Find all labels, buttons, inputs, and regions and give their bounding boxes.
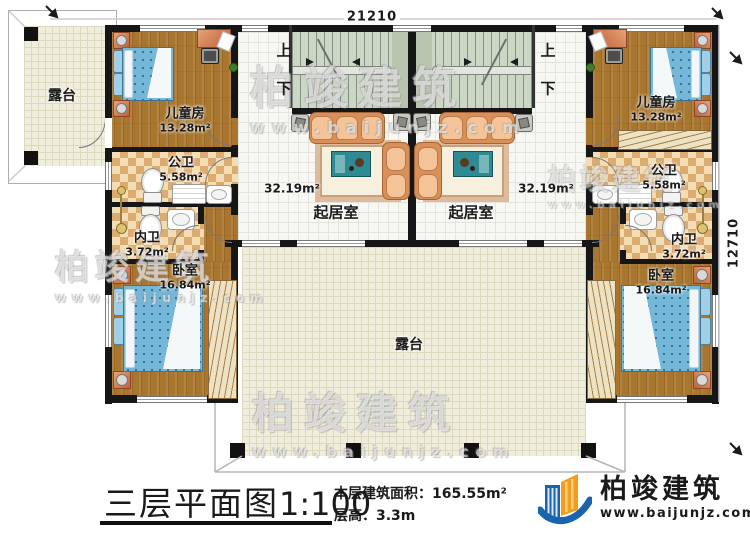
room-area-living-right: 32.19m² <box>518 182 574 195</box>
room-label-public-bath-left: 公卫5.58m² <box>159 157 202 184</box>
wardrobe <box>208 280 237 399</box>
plan-title: 三层平面图 <box>104 484 279 523</box>
wall-segment <box>684 25 716 32</box>
room-label-child-left: 儿童房13.28m² <box>159 108 210 135</box>
column <box>581 443 596 458</box>
speaker <box>393 113 411 131</box>
computer-monitor <box>201 48 219 64</box>
window <box>105 162 112 190</box>
wall-segment <box>280 240 297 247</box>
window <box>297 240 365 247</box>
wall-segment <box>231 145 238 157</box>
window <box>242 25 268 32</box>
wall-segment <box>527 240 544 247</box>
coffee-table <box>331 151 371 177</box>
door-opening <box>105 118 112 148</box>
room-label-private-bath-right: 内卫3.72m² <box>662 234 705 261</box>
wall-segment <box>105 190 112 295</box>
wall-segment <box>365 240 413 247</box>
wall-segment <box>620 205 626 224</box>
bed-pillow <box>691 50 700 98</box>
nightstand <box>693 266 711 284</box>
stairs-up-label-left: 上 <box>276 40 291 61</box>
window <box>140 25 205 32</box>
title-block: 三层平面图1:100 <box>104 477 371 525</box>
company-logo: 柏竣建筑 www.baijunjz.com <box>538 468 750 528</box>
stair-handrail <box>292 66 392 75</box>
floor-plan-canvas: 柏竣建筑www.baijunjz.com 柏竣建筑www.baijunjz.co… <box>0 0 750 540</box>
stair-direction-arrow <box>464 58 472 66</box>
wall-segment <box>586 145 593 157</box>
wall-segment <box>687 395 719 403</box>
column <box>24 27 38 41</box>
wardrobe <box>618 130 712 150</box>
nightstand <box>694 100 711 117</box>
wall-segment <box>198 250 204 262</box>
sink <box>206 185 232 204</box>
stairs-up-label-right: 上 <box>540 40 555 61</box>
wardrobe <box>587 280 616 399</box>
stair-direction-arrow <box>352 58 360 66</box>
room-label-private-bath-left: 内卫3.72m² <box>125 232 168 259</box>
wall-segment <box>431 25 556 32</box>
column <box>346 443 361 458</box>
nightstand <box>113 266 131 284</box>
toilet-tank <box>662 192 681 203</box>
nightstand <box>693 371 711 389</box>
wall-segment <box>268 25 393 32</box>
toilet-tank <box>143 192 162 203</box>
stair-handrail <box>432 66 532 75</box>
wall-segment <box>231 184 238 215</box>
sofa <box>439 112 515 144</box>
stair-direction-arrow <box>306 58 314 66</box>
floor-area-note: 本层建筑面积：165.55m² <box>334 484 507 506</box>
sofa <box>309 112 385 144</box>
nightstand <box>113 100 130 117</box>
speaker <box>291 114 309 132</box>
dimension-top: 21210 <box>344 10 400 25</box>
wall-segment <box>198 205 204 224</box>
wall-segment <box>108 25 140 32</box>
coffee-table <box>453 151 493 177</box>
window <box>556 25 582 32</box>
column <box>230 443 245 458</box>
armchair-pair <box>382 142 410 200</box>
room-label-terrace-bottom: 露台 <box>395 338 423 354</box>
wall-segment <box>105 148 112 162</box>
logo-url: www.baijunjz.com <box>600 506 750 521</box>
window <box>459 240 527 247</box>
bed-pillow <box>125 289 135 368</box>
towel-rail <box>117 186 125 232</box>
speaker <box>413 113 431 131</box>
room-label-public-bath-right: 公卫5.58m² <box>642 165 685 192</box>
window <box>105 295 112 347</box>
sink <box>592 185 618 204</box>
towel-rail <box>699 186 707 232</box>
room-label-child-right: 儿童房13.28m² <box>630 97 681 124</box>
plant <box>586 63 595 72</box>
window <box>619 25 684 32</box>
floor-stair-landing <box>414 32 432 108</box>
wall-segment <box>712 190 719 295</box>
wall-segment <box>712 25 719 162</box>
plan-notes: 本层建筑面积：165.55m² 层高：3.3m <box>334 484 507 527</box>
title-underline <box>100 521 332 525</box>
column <box>24 151 38 165</box>
window <box>411 25 431 32</box>
wall-segment <box>411 32 416 247</box>
wall-segment <box>532 25 535 108</box>
computer-monitor <box>605 48 623 64</box>
window <box>712 295 719 347</box>
room-label-living-left: 起居室 <box>313 205 358 222</box>
wall-segment <box>105 395 137 403</box>
floor-height-note: 层高：3.3m <box>334 506 507 528</box>
dimension-right: 12710 <box>727 215 742 271</box>
window <box>544 240 582 247</box>
wall-segment <box>411 240 459 247</box>
room-label-bedroom-left: 卧室16.84m² <box>159 265 210 292</box>
stair-direction-arrow <box>510 58 518 66</box>
stairs-down-label-left: 下 <box>276 78 291 99</box>
room-area-living-left: 32.19m² <box>264 182 320 195</box>
window <box>712 162 719 190</box>
armchair-pair <box>414 142 442 200</box>
column <box>464 443 479 458</box>
stairs-down-label-right: 下 <box>540 78 555 99</box>
bed-pillow <box>689 289 699 368</box>
logo-name: 柏竣建筑 <box>600 476 750 503</box>
window <box>242 240 280 247</box>
window <box>617 396 687 403</box>
speaker <box>515 114 533 132</box>
bed-pillow <box>124 50 133 98</box>
wall-segment <box>105 25 112 118</box>
room-label-terrace-left: 露台 <box>48 89 76 105</box>
nightstand <box>113 371 131 389</box>
wall-segment <box>112 147 238 152</box>
bath-vanity <box>172 184 206 204</box>
wall-segment <box>620 250 626 262</box>
room-label-living-right: 起居室 <box>448 205 493 222</box>
window <box>137 396 207 403</box>
plant <box>229 63 238 72</box>
window <box>393 25 413 32</box>
logo-icon <box>538 468 592 528</box>
room-label-bedroom-right: 卧室16.84m² <box>635 270 686 297</box>
